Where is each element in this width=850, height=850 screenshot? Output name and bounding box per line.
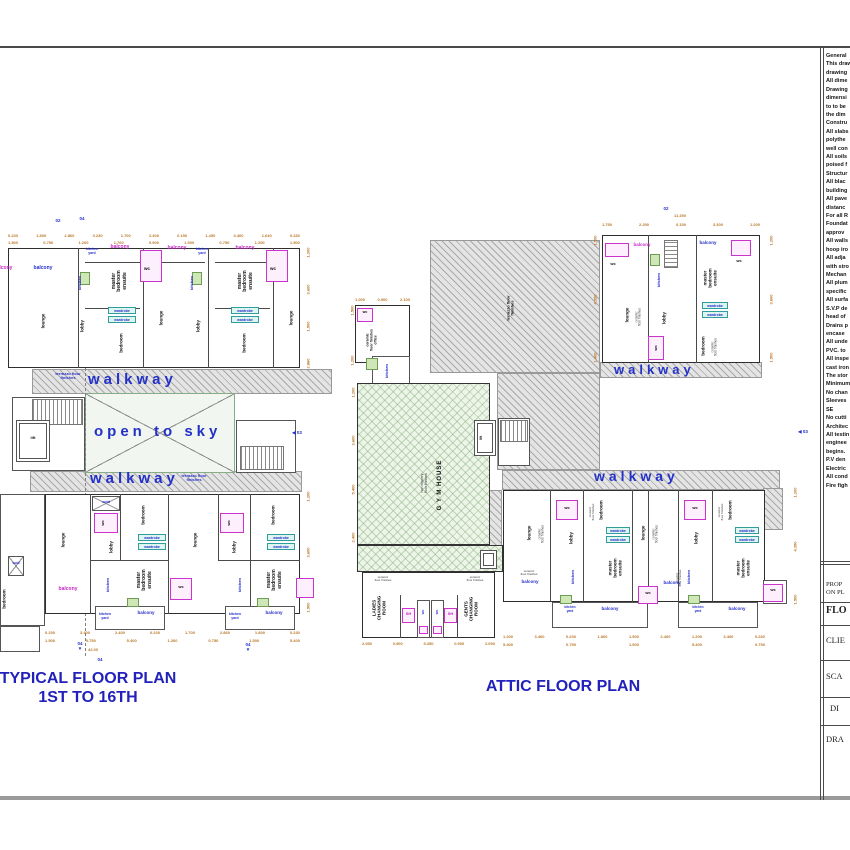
wc-fixture [731, 240, 751, 256]
non-slippery-label: non slippery floor finishes [417, 458, 433, 508]
section-marker-text: 03 [803, 429, 808, 434]
dim-value: 1.500 [592, 235, 597, 245]
dim-value: 0.230 [290, 233, 300, 238]
general-note-line: S.V.P de [826, 305, 850, 313]
wc-label: wc [684, 506, 706, 510]
dim-value: 5.400 [127, 638, 137, 643]
wall-line [90, 494, 91, 614]
lobby-label: lobby [230, 535, 240, 559]
general-note-line: All surfa [826, 296, 850, 304]
kitchen-label: kitchen [382, 358, 392, 384]
typical-floor-plan-label: TYPICAL FLOOR PLAN [0, 670, 178, 688]
section-marker-text: 04 [79, 216, 84, 221]
kitchen-fixture [560, 595, 572, 604]
wc-fixture [433, 626, 442, 634]
dim-value: 1.500 [629, 642, 639, 647]
master-label: master bedroom ensuite [602, 550, 630, 586]
bedroom-label: bedroom [268, 500, 279, 530]
ceramic-label: ceramic floor finishes office [360, 322, 384, 358]
dim-value: 1.000 [355, 297, 365, 302]
master-label-text: master bedroom ensuite [737, 550, 752, 586]
bedroom-label-text: bedroom [728, 496, 733, 524]
dim-value: 2.400 [115, 630, 125, 635]
bedroom-label: bedroom [698, 332, 709, 360]
gents-label: GENTS CHANGING ROOM [458, 584, 486, 634]
dim-value: 3.400 [80, 630, 90, 635]
lounge-label: lounge [286, 304, 298, 332]
drawing-title: FLO [826, 605, 847, 616]
dim-value: 2.400 [149, 233, 159, 238]
general-note-line: All pave [826, 195, 850, 203]
ceramic-label: ceramic floor finishes [715, 498, 726, 526]
dim-value: 1.750 [602, 222, 612, 227]
kitchen-label: kitchen [74, 270, 85, 296]
section-marker-02: 02 [52, 219, 64, 224]
balcony-label: balcony [514, 579, 546, 584]
lobby-label-text: lobby [570, 526, 575, 550]
1st-to-16th-label: 1ST TO 16TH [0, 689, 178, 707]
kitchen-fixture [366, 358, 378, 370]
dim-value: 1.200 [305, 247, 310, 257]
master-label-text: master bedroom ensuite [137, 560, 153, 600]
kitchen-label-text: kitchen [105, 572, 109, 598]
void-label: void [8, 562, 24, 566]
lobby-label-text: lobby [663, 305, 668, 331]
dim-value: 1.760 [114, 240, 124, 245]
general-note-line: All slabs [826, 128, 850, 136]
dim-value: 3.600 [305, 284, 310, 294]
lobby-label: lobby [78, 314, 88, 338]
master-label-text: master bedroom ensuite [267, 560, 283, 600]
wc-label: wc [419, 604, 428, 620]
dim-value: 2.050 [362, 641, 372, 646]
dim-value: 1.800 [255, 630, 265, 635]
kitchen-label: kitchen yard [94, 613, 116, 621]
master-label: master bedroom ensuite [696, 260, 726, 296]
lobby-label: lobby [660, 305, 670, 331]
titleblock-divider [821, 564, 850, 565]
dimension-chain: 1.0000.9002.100 [355, 297, 410, 302]
master-label-text: master bedroom ensuite [704, 260, 719, 296]
titleblock-divider [821, 725, 850, 726]
dim-value: 2.860 [64, 233, 74, 238]
general-note-line: For all R [826, 212, 850, 220]
lift-label-text: lift [480, 426, 484, 450]
walkway-label: walkway [614, 363, 695, 378]
bedroom-label-text: bedroom [701, 332, 706, 360]
42-00-label: 42.00 [78, 648, 108, 652]
dimension-chain: 2.0500.9005.3500.9002.050 [362, 641, 495, 646]
general-note-line: All walls [826, 237, 850, 245]
11-250-label: 11.250 [650, 214, 710, 218]
dim-value: 2.100 [400, 297, 410, 302]
wc-label: wc [357, 311, 373, 315]
general-note-line: Mechan [826, 271, 850, 279]
dim-value: 0.230 [93, 233, 103, 238]
general-note-line: polythe [826, 136, 850, 144]
wardrobe-box: wardrobe [267, 534, 295, 541]
master-label: master bedroom ensuite [730, 550, 758, 586]
master-label-text: master bedroom ensuite [238, 260, 254, 302]
general-note-line: All blac [826, 178, 850, 186]
lobby-label: lobby [194, 314, 204, 338]
wc-label: wc [763, 588, 783, 592]
wardrobe-box: wardrobe [735, 536, 759, 543]
ceramic-label: ceramic floor finishes [674, 564, 684, 592]
wc-label: wc [606, 262, 620, 266]
dim-value: 1.200 [305, 491, 310, 501]
dimension-chain: 1.2003.6001.500 [303, 494, 312, 610]
dim-value: 5.400 [692, 642, 702, 647]
section-marker-04: 04 [94, 658, 106, 663]
general-note-line: No chan [826, 389, 850, 397]
wall-line [250, 494, 251, 614]
general-note-line: Minimum [826, 380, 850, 388]
dim-value: 3.600 [350, 436, 355, 446]
dim-value: 1.200 [503, 634, 513, 639]
titleblock-divider [821, 697, 850, 698]
kitchen-fixture [688, 595, 700, 604]
dim-value: 5.400 [290, 638, 300, 643]
master-label: master bedroom ensuite [260, 560, 290, 600]
lounge-label: lounge [58, 526, 70, 554]
bedroom-label: bedroom [596, 496, 607, 524]
general-note-line: The stor [826, 372, 850, 380]
dim-value: 1.200 [768, 235, 773, 245]
ceramic-label: ceramic floor finishes [709, 332, 721, 362]
terrazzo-floor-label: terrazzo floor finishes [50, 372, 86, 381]
ceramic-label-text: ceramic floor finishes [588, 498, 594, 526]
kitchen-fixture [257, 598, 269, 607]
scale-label: SCA [826, 671, 843, 681]
dim-value: 0.900 [454, 641, 464, 646]
balcony-label: balcony [157, 246, 197, 252]
sheet-top-border [0, 46, 850, 48]
balcony-label: balcony [719, 606, 755, 611]
wc-label: wc [433, 604, 442, 620]
ladies-label-text: LADIES CHANGING ROOM [373, 584, 388, 632]
balcony-label: balcony [592, 606, 628, 611]
dim-value: 1.800 [36, 233, 46, 238]
dim-value: 0.750 [208, 638, 218, 643]
ceramic-label-text: ceramic floor finishes [712, 332, 719, 362]
lounge-label-text: lounge [642, 518, 647, 548]
g-y-m-house-label: G Y M HOUSE [432, 445, 447, 525]
section-marker-03: ◀ 03 [794, 430, 812, 435]
section-marker-text: 03 [297, 430, 302, 435]
dim-value: 0.750 [86, 638, 96, 643]
wc-label-text: wc [654, 340, 658, 356]
dim-value: 3.400 [234, 233, 244, 238]
dim-value: 1.200 [78, 240, 88, 245]
lounge-label: lounge [156, 304, 168, 332]
dim-value: 3.600 [305, 547, 310, 557]
dim-value: 1.500 [45, 638, 55, 643]
kitchen-label: kitchen yard [560, 606, 580, 613]
wall-line [120, 494, 121, 560]
bedroom-label: bedroom [239, 328, 250, 358]
ceramic-label-text: ceramic floor finishes [676, 564, 682, 592]
dim-value: 5.350 [423, 641, 433, 646]
general-note-line: All testin [826, 431, 850, 439]
wall-line [712, 490, 713, 602]
general-note-line: P.V den [826, 456, 850, 464]
lobby-label: lobby [107, 535, 117, 559]
dim-value: 1.500 [290, 240, 300, 245]
general-note-line: Sleeves [826, 397, 850, 405]
walkway-label: walkway [594, 469, 679, 485]
dim-value: 0.750 [566, 642, 576, 647]
dim-value: 3.400 [534, 634, 544, 639]
dim-value: 1.500 [629, 634, 639, 639]
open-to-sky-label: open to sky [94, 424, 221, 441]
kitchen-label-text: kitchen [687, 564, 691, 590]
ceramic-label: ceramic floor finishes [650, 518, 662, 550]
dim-value: 2.860 [305, 358, 310, 368]
bedroom-label-text: bedroom [242, 328, 247, 358]
general-note-line: All plum [826, 279, 850, 287]
lift-shaft [480, 550, 497, 569]
kitchen-label: kitchen [568, 564, 578, 590]
kitchen-label-text: kitchen [657, 266, 661, 294]
wc-label: wc [98, 514, 108, 532]
general-note-line: approv [826, 229, 850, 237]
general-note-line: hoop iro [826, 246, 850, 254]
kitchen-label: kitchen yard [82, 248, 102, 256]
lobby-label-text: lobby [81, 314, 86, 338]
general-note-line: specific [826, 288, 850, 296]
ceramic-label-text: ceramic floor finishes [653, 518, 660, 550]
balcony-label: balcony [690, 240, 726, 245]
balcony-label: balcony [50, 587, 86, 593]
dimension-chain: 1.5000.7505.4001.2000.7501.5005.400 [45, 638, 300, 643]
master-label: master bedroom ensuite [105, 260, 135, 302]
dim-value: 0.900 [393, 641, 403, 646]
wc-label: wc [638, 591, 658, 595]
lounge-label-text: lounge [194, 526, 199, 554]
walkway-label: walkway [90, 471, 179, 488]
dim-value: 2.400 [350, 532, 355, 542]
wall-line [696, 235, 697, 363]
section-marker-02: 02 [660, 207, 672, 212]
non-slippery-label-text: non slippery floor finishes [421, 458, 429, 508]
dim-value: 0.750 [219, 240, 229, 245]
sh-label: SH [444, 612, 457, 616]
bedroom-label-text: bedroom [3, 584, 8, 614]
kitchen-label: kitchen [684, 564, 694, 590]
lounge-label-text: lounge [41, 308, 46, 334]
wardrobe-box: wardrobe [108, 307, 136, 314]
general-note-line: Drawing [826, 86, 850, 94]
ceramic-label: ceramic floor finishes [586, 498, 597, 526]
kitchen-label: kitchen yard [688, 606, 708, 613]
lobby-label-text: lobby [110, 535, 115, 559]
general-note-line: head of [826, 313, 850, 321]
ceramic-label: ceramic floor finishes [536, 518, 548, 550]
wc-label: wc [650, 340, 662, 356]
general-note-line: enginee [826, 439, 850, 447]
kitchen-label: kitchen yard [224, 613, 246, 621]
section-marker-text: 02 [55, 218, 60, 223]
dimension-chain: 1.2004.3501.500 [790, 490, 799, 602]
drawing-sheet: liftbalconybalconybalconybalconybalconyk… [0, 0, 850, 850]
bedroom-label: bedroom [138, 500, 149, 530]
dimension-chain: 5.4000.7501.5005.4000.750 [503, 642, 765, 647]
lobby-label-text: lobby [233, 535, 238, 559]
dimension-chain: 1.5000.7501.2001.7600.9001.5000.7501.200… [8, 240, 300, 245]
dim-value: 3.400 [723, 634, 733, 639]
wall-line [78, 248, 79, 368]
wc-label: wc [732, 259, 746, 263]
balcony-label: balcony [126, 610, 166, 615]
dim-value: 0.750 [755, 642, 765, 647]
wc-label-text: wc [436, 604, 440, 620]
general-notes-panel: GeneralThis drawdrawingAll dimeDrawingdi… [826, 52, 850, 490]
panel-border-outer [820, 46, 821, 800]
dimension-chain: 1.7502.2500.1503.3001.200 [602, 222, 760, 227]
dim-value: 2.050 [485, 641, 495, 646]
section-marker-04: 04 ▼ [242, 643, 254, 652]
dim-value: 0.900 [377, 297, 387, 302]
kitchen-label: kitchen [654, 266, 664, 294]
kitchen-label: kitchen yard [192, 248, 212, 256]
balcony-label: balcony [254, 610, 294, 615]
ceramic-label-text: ceramic floor finishes [717, 498, 723, 526]
wc-label: wc [224, 514, 234, 532]
terrazzo-floor-label-text: terrazzo floor finishes [507, 286, 516, 330]
general-note-line: begins. [826, 448, 850, 456]
section-marker-03: ◀ 03 [288, 431, 306, 436]
lounge-label-text: lounge [290, 304, 295, 332]
lounge-label: lounge [524, 518, 536, 548]
wall-line [632, 490, 633, 602]
general-note-line: to to be [826, 103, 850, 111]
bedroom-label-text: bedroom [599, 496, 604, 524]
balcony-label: balcony [100, 245, 140, 251]
dim-value: 0.900 [149, 240, 159, 245]
dim-value: 1.500 [305, 602, 310, 612]
general-note-line: Architec [826, 423, 850, 431]
titleblock-divider [821, 602, 850, 603]
design-label: DI [830, 703, 839, 713]
void-area [8, 556, 24, 576]
wall-line [218, 494, 219, 560]
dim-value: 1.200 [750, 222, 760, 227]
g-y-m-house-label-text: G Y M HOUSE [436, 445, 442, 525]
dim-value: 1.500 [249, 638, 259, 643]
wc-fixture [419, 626, 428, 634]
dimension-chain: 1.2003.4000.2301.8001.5002.4001.2003.400… [503, 634, 765, 639]
dim-value: 1.700 [121, 233, 131, 238]
section-arrow-icon: ▼ [246, 647, 250, 652]
general-note-line: This draw [826, 60, 850, 68]
general-note-line: All unde [826, 338, 850, 346]
dim-value: 2.250 [639, 222, 649, 227]
master-label-text: master bedroom ensuite [112, 260, 128, 302]
lobby-label: lobby [692, 526, 702, 550]
master-label: master bedroom ensuite [231, 260, 261, 302]
dimension-chain: 0.2301.8002.8600.2301.7002.4000.1501.450… [8, 233, 300, 238]
kitchen-label-text: kitchen [237, 572, 241, 598]
wc-label-text: wc [101, 514, 105, 532]
kitchen-label: kitchen [186, 270, 197, 296]
dim-value: 1.500 [349, 305, 354, 315]
dim-value: 1.200 [692, 634, 702, 639]
terrazzo-floor-label: terrazzo floor finishes [502, 286, 520, 330]
general-note-line: SE [826, 406, 850, 414]
attic-floor-plan-label: ATTIC FLOOR PLAN [478, 678, 648, 696]
ceramic-label-text: ceramic floor finishes office [366, 322, 377, 358]
wardrobe-box: wardrobe [702, 302, 728, 309]
balcony-label: balcony [225, 246, 265, 252]
dim-value: 0.230 [8, 233, 18, 238]
void-label: void [92, 500, 120, 504]
stairs-icon [664, 240, 678, 268]
gents-label-text: GENTS CHANGING ROOM [465, 584, 480, 634]
walkway-label: walkway [88, 372, 177, 389]
kitchen-label-text: kitchen [77, 270, 81, 296]
general-note-line: All cond [826, 473, 850, 481]
dim-value: 1.200 [167, 638, 177, 643]
balcony-label: balcony [0, 266, 20, 272]
stairs-icon [240, 446, 284, 470]
dimension-chain: 1.5004.3501.400 [590, 238, 599, 360]
dim-value: 1.500 [184, 240, 194, 245]
wc-label-text: wc [227, 514, 231, 532]
lift-label: lift [477, 426, 487, 450]
bedroom-label-text: bedroom [119, 328, 124, 358]
ceramic-label: ceramic floor finishes [514, 570, 544, 577]
general-note-line: Structur [826, 170, 850, 178]
dim-value: 1.500 [305, 321, 310, 331]
kitchen-label-text: kitchen [385, 358, 389, 384]
dim-value: 5.400 [350, 484, 355, 494]
general-note-line: All adja [826, 254, 850, 262]
lift-shaft [16, 420, 50, 462]
general-note-line: General [826, 52, 850, 60]
dim-value: 0.230 [45, 630, 55, 635]
general-note-line: Constru [826, 119, 850, 127]
balcony-label: balcony [624, 242, 660, 247]
dim-value: 0.150 [177, 233, 187, 238]
wall-line [550, 490, 551, 602]
ceramic-label: ceramic floor finishes [460, 576, 490, 583]
wall-line [400, 595, 401, 638]
wardrobe-box: wardrobe [735, 527, 759, 534]
lift-label: lift [16, 436, 50, 440]
dim-value: 0.230 [566, 634, 576, 639]
wardrobe-box: wardrobe [267, 543, 295, 550]
titleblock-divider [821, 660, 850, 661]
wc-label-text: wc [422, 604, 426, 620]
dim-value: 3.300 [713, 222, 723, 227]
panel-border-inner [823, 46, 824, 800]
lounge-label-text: lounge [625, 300, 630, 330]
wardrobe-box: wardrobe [108, 316, 136, 323]
general-note-line: poised f [826, 161, 850, 169]
kitchen-label-text: kitchen [571, 564, 575, 590]
lounge-label-text: lounge [528, 518, 533, 548]
section-marker-text: 04 [97, 657, 102, 662]
wc-label: wc [266, 266, 280, 271]
dim-value: 1.200 [792, 487, 797, 497]
general-note-line: PVC. to [826, 347, 850, 355]
dimension-chain: 1.2003.6005.4002.400 [348, 390, 357, 540]
dim-value: 1.500 [768, 352, 773, 362]
lobby-label-text: lobby [695, 526, 700, 550]
dim-value: 1.500 [792, 594, 797, 604]
dimension-chain: 0.2303.4002.4000.2301.7002.8601.8000.230 [45, 630, 300, 635]
